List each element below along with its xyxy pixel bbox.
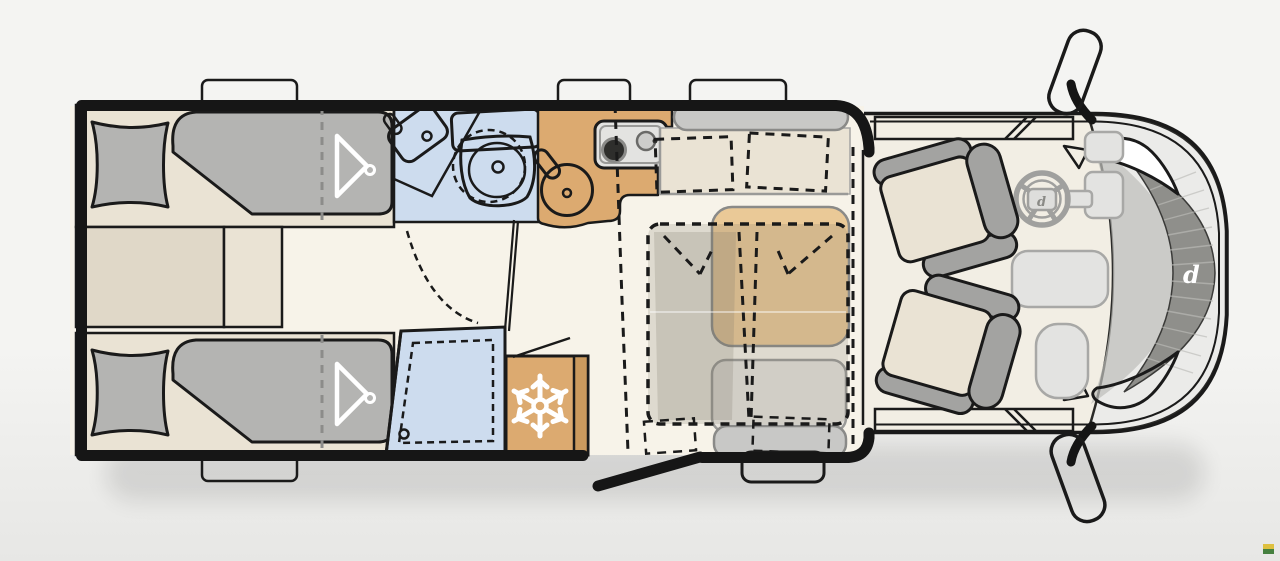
burner-small bbox=[637, 132, 655, 150]
floorplan-canvas: d bbox=[0, 0, 1280, 561]
stove bbox=[595, 121, 667, 168]
motorhome-floorplan: d bbox=[0, 0, 1280, 561]
steering-logo: d bbox=[1037, 195, 1046, 210]
cab-section: d bbox=[853, 114, 1227, 449]
single-bed-bottom bbox=[76, 333, 394, 455]
cabinet-step bbox=[224, 227, 282, 327]
watermark-badge bbox=[1263, 544, 1274, 554]
fridge bbox=[506, 338, 588, 455]
steering-wheel: d bbox=[1016, 173, 1068, 225]
shower bbox=[386, 327, 505, 455]
pillow bbox=[92, 122, 168, 207]
bathroom-floor bbox=[394, 104, 542, 222]
dinette-bed-conversion-outline bbox=[648, 224, 848, 424]
center-console bbox=[1012, 251, 1108, 307]
bedroom-cabinets bbox=[76, 227, 282, 327]
brand-logo: d bbox=[1183, 260, 1200, 289]
cab-floor-mat bbox=[1036, 324, 1088, 398]
side-mirror-top bbox=[1044, 26, 1105, 120]
cabinet-large bbox=[76, 227, 224, 327]
burner-large bbox=[603, 139, 626, 162]
single-bed-top bbox=[76, 105, 394, 227]
